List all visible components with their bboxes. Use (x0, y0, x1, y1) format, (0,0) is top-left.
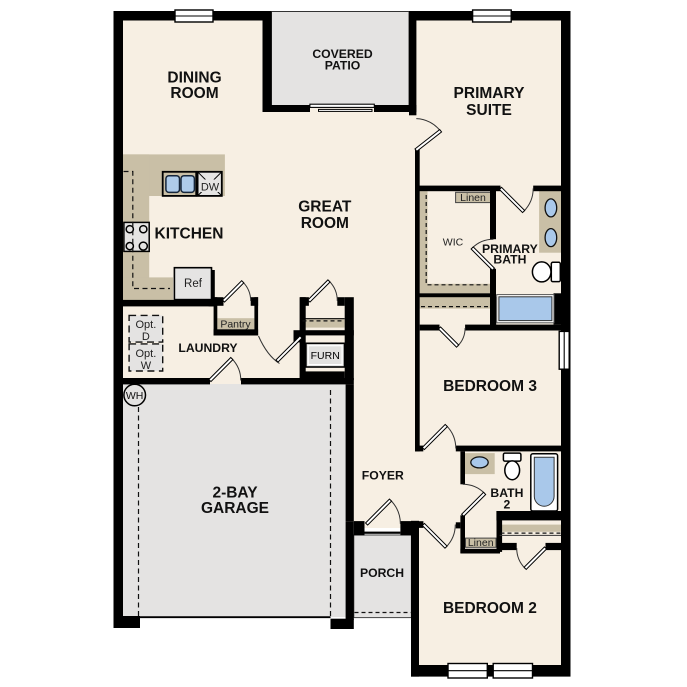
svg-text:DW: DW (201, 182, 220, 194)
svg-text:KITCHEN: KITCHEN (155, 226, 224, 243)
svg-text:ROOM: ROOM (301, 215, 349, 232)
svg-text:Linen: Linen (460, 192, 486, 204)
svg-text:ROOM: ROOM (170, 85, 218, 102)
svg-text:GREAT: GREAT (298, 198, 352, 215)
svg-text:BEDROOM 2: BEDROOM 2 (443, 600, 537, 617)
svg-text:Linen: Linen (468, 537, 494, 549)
svg-text:WIC: WIC (443, 237, 464, 249)
svg-text:Ref: Ref (184, 278, 203, 290)
svg-text:LAUNDRY: LAUNDRY (178, 341, 237, 355)
svg-text:Opt.: Opt. (136, 348, 157, 360)
svg-text:BATH: BATH (493, 253, 526, 267)
svg-text:Pantry: Pantry (220, 319, 251, 331)
svg-text:D: D (142, 331, 150, 343)
svg-text:WH: WH (126, 390, 144, 402)
svg-text:2: 2 (504, 498, 511, 512)
svg-text:FURN: FURN (311, 350, 340, 362)
svg-text:W: W (141, 360, 152, 372)
svg-text:GARAGE: GARAGE (201, 500, 269, 517)
svg-text:PRIMARY: PRIMARY (454, 85, 526, 102)
svg-text:SUITE: SUITE (466, 102, 512, 119)
svg-text:PORCH: PORCH (360, 566, 404, 580)
svg-text:DINING: DINING (167, 70, 221, 87)
svg-text:FOYER: FOYER (362, 469, 404, 483)
svg-text:Opt.: Opt. (136, 319, 157, 331)
svg-text:BEDROOM 3: BEDROOM 3 (443, 378, 537, 395)
svg-text:PATIO: PATIO (325, 59, 360, 73)
